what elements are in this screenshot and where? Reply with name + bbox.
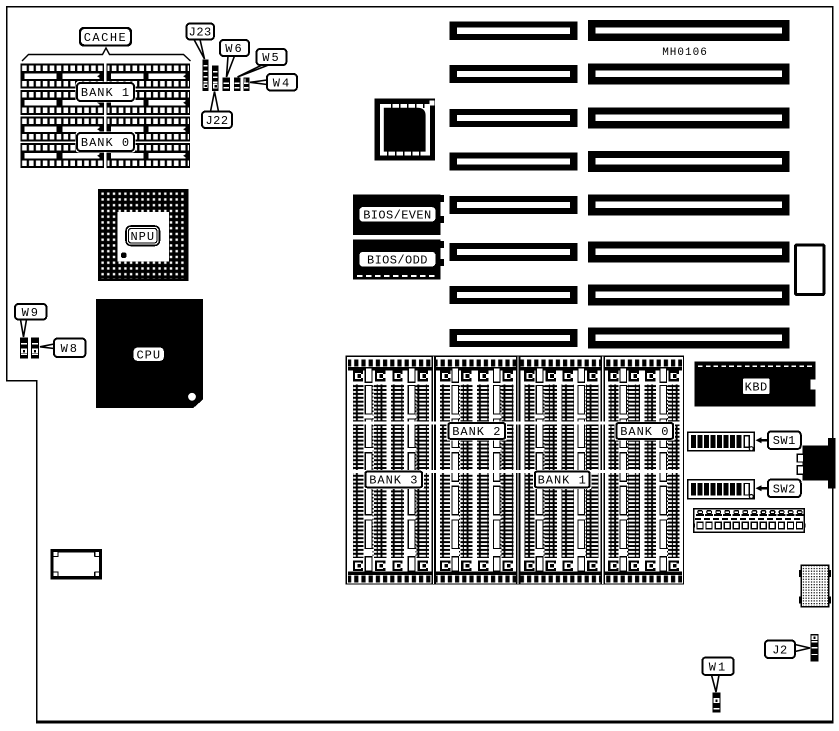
svg-text:BANK 0: BANK 0	[620, 425, 669, 439]
svg-text:J22: J22	[205, 114, 228, 128]
svg-text:BIOS/ODD: BIOS/ODD	[367, 253, 428, 267]
svg-text:SW1: SW1	[773, 434, 796, 448]
svg-text:W9: W9	[22, 306, 40, 320]
svg-text:BANK 1: BANK 1	[538, 474, 587, 488]
svg-text:W8: W8	[61, 342, 79, 356]
svg-text:BIOS/EVEN: BIOS/EVEN	[363, 208, 431, 222]
svg-text:W1: W1	[709, 660, 727, 674]
svg-text:W6: W6	[225, 42, 243, 56]
svg-text:CPU: CPU	[136, 349, 161, 363]
svg-text:J23: J23	[189, 26, 212, 40]
svg-text:BANK 3: BANK 3	[369, 474, 418, 488]
svg-text:CACHE: CACHE	[84, 31, 128, 45]
svg-text:NPU: NPU	[130, 230, 155, 244]
svg-text:SW2: SW2	[773, 482, 796, 496]
svg-text:W4: W4	[273, 76, 291, 90]
svg-text:BANK 0: BANK 0	[81, 136, 130, 150]
svg-text:KBD: KBD	[745, 380, 768, 394]
svg-text:J2: J2	[772, 643, 787, 657]
svg-text:W5: W5	[262, 51, 280, 65]
svg-text:BANK 1: BANK 1	[81, 86, 130, 100]
svg-text:MH0106: MH0106	[662, 47, 708, 59]
svg-text:BANK 2: BANK 2	[452, 425, 501, 439]
